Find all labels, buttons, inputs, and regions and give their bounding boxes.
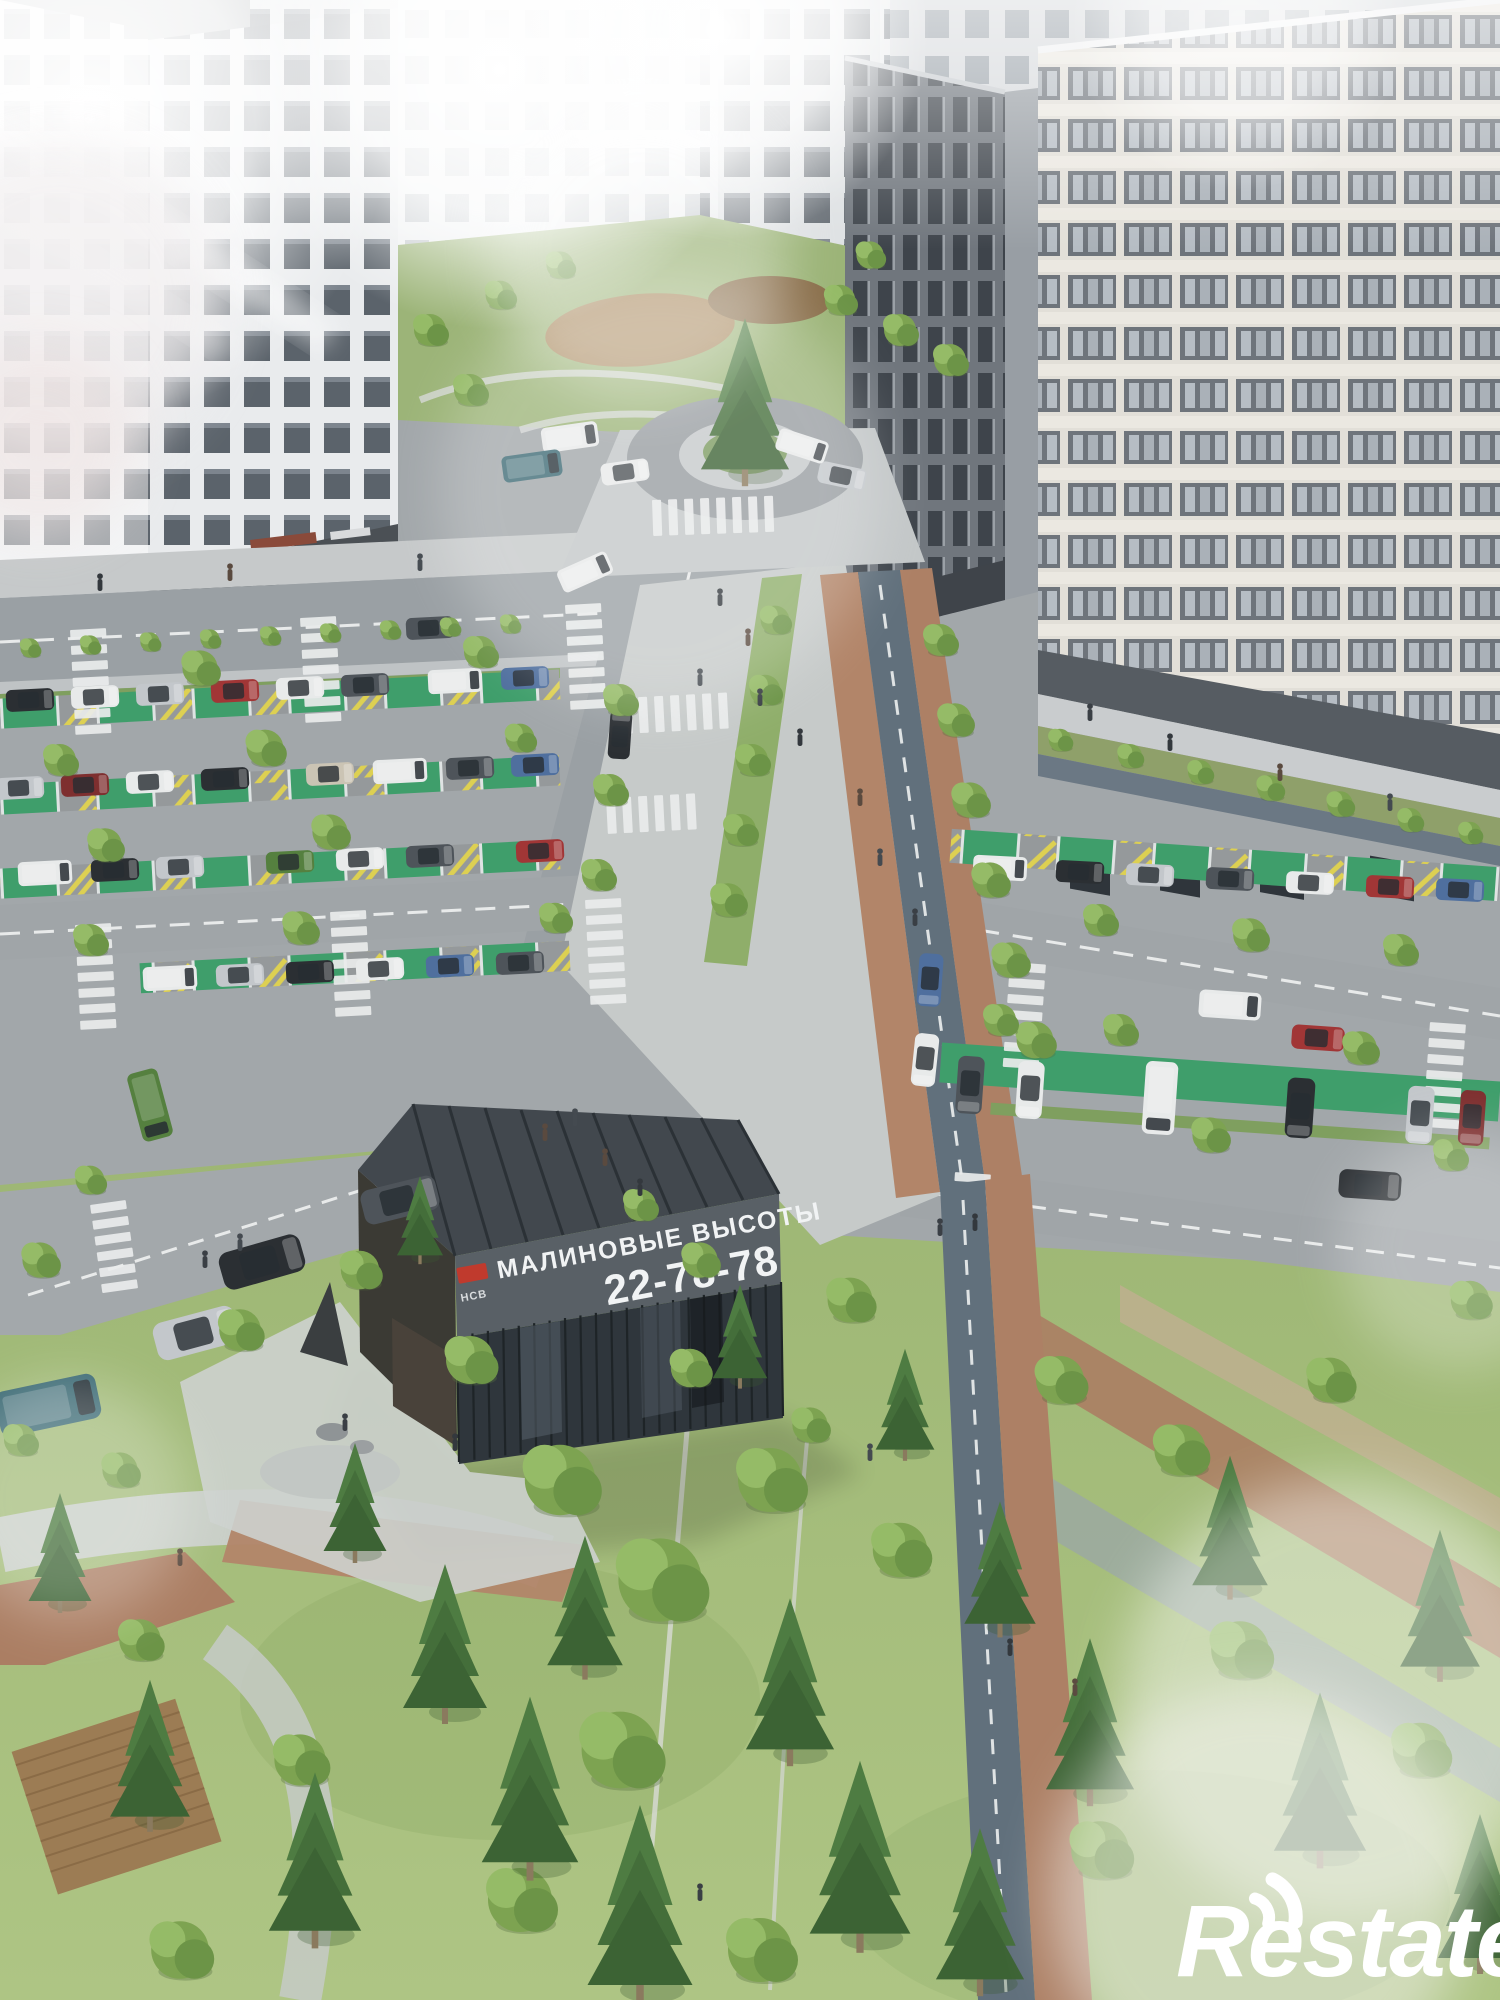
person (912, 908, 918, 926)
zebra-stripe (638, 796, 649, 832)
person (417, 553, 423, 571)
car (340, 673, 389, 697)
person (1167, 733, 1173, 751)
van (1198, 989, 1262, 1021)
zebra-stripe (670, 794, 681, 830)
car (1205, 867, 1254, 891)
person (637, 1178, 643, 1196)
zebra-stripe (686, 793, 697, 829)
person (1277, 763, 1283, 781)
aerial-render: НСВ МАЛИНОВЫЕ ВЫСОТЫ 22-78-78 Restate (0, 0, 1500, 2000)
car (1285, 871, 1334, 895)
car (355, 957, 404, 981)
car (70, 685, 119, 709)
person (797, 728, 803, 746)
person (1087, 703, 1093, 721)
zebra-stripe (305, 712, 341, 723)
zebra-stripe (588, 946, 624, 957)
van (372, 758, 427, 785)
car (335, 847, 384, 871)
car (916, 953, 944, 1007)
car (510, 753, 559, 777)
zebra-stripe (589, 978, 625, 989)
fog-patch (440, 270, 880, 710)
render-image: НСВ МАЛИНОВЫЕ ВЫСОТЫ 22-78-78 Restate (0, 0, 1500, 2000)
car (405, 844, 454, 868)
van (1141, 1061, 1178, 1136)
person (342, 1413, 348, 1431)
car (125, 770, 174, 794)
zebra-stripe (588, 962, 624, 973)
car (215, 963, 264, 987)
person (697, 1883, 703, 1901)
car (607, 710, 632, 759)
zebra-stripe (335, 1006, 371, 1017)
car (1125, 863, 1174, 887)
car (275, 676, 324, 700)
watermark-text: Restate (1176, 1884, 1500, 1998)
car (1055, 860, 1104, 884)
person (972, 1213, 978, 1231)
car (135, 682, 184, 706)
car (495, 951, 544, 975)
plaza-circle (260, 1445, 400, 1499)
person (97, 573, 103, 591)
zebra-stripe (587, 930, 623, 941)
person (857, 788, 863, 806)
van (142, 965, 197, 992)
person (867, 1443, 873, 1461)
zebra-stripe (79, 1003, 115, 1014)
van (427, 668, 482, 695)
car (1015, 1060, 1045, 1119)
person (452, 1433, 458, 1451)
zebra-stripe (585, 898, 621, 909)
zebra-stripe (78, 971, 114, 982)
person (237, 1233, 243, 1251)
car (1365, 875, 1414, 899)
zebra-stripe (78, 987, 114, 998)
car (305, 762, 354, 786)
car (515, 839, 564, 863)
car (155, 855, 204, 879)
car (1435, 878, 1484, 902)
car (0, 776, 45, 800)
person (1007, 1638, 1013, 1656)
zebra-stripe (80, 1019, 116, 1030)
zebra-stripe (75, 724, 111, 735)
zebra-stripe (654, 795, 665, 831)
car (285, 960, 334, 984)
car (955, 1055, 985, 1114)
person (1387, 793, 1393, 811)
person (602, 1148, 608, 1166)
car (1284, 1077, 1316, 1139)
zebra-stripe (586, 914, 622, 925)
car (200, 767, 249, 791)
car (425, 954, 474, 978)
zebra-stripe (334, 990, 370, 1001)
zebra-stripe (330, 910, 366, 921)
restate-watermark: Restate (1176, 1876, 1500, 1998)
car (5, 688, 54, 712)
van (17, 860, 72, 887)
zebra-stripe (302, 648, 338, 659)
person (542, 1123, 548, 1141)
car (265, 850, 314, 874)
zebra-stripe (590, 994, 626, 1005)
zebra-stripe (74, 708, 110, 719)
glass-reflection (520, 1321, 562, 1440)
person (877, 848, 883, 866)
car (1291, 1024, 1345, 1052)
person (1072, 1678, 1078, 1696)
zebra-stripe (331, 926, 367, 937)
car (445, 756, 494, 780)
person (937, 1218, 943, 1236)
zebra-stripe (72, 660, 108, 671)
person (202, 1250, 208, 1268)
zebra-stripe (303, 664, 339, 675)
person (572, 1108, 578, 1126)
zebra-stripe (332, 942, 368, 953)
zebra-stripe (73, 676, 109, 687)
person (227, 563, 233, 581)
person (757, 688, 763, 706)
